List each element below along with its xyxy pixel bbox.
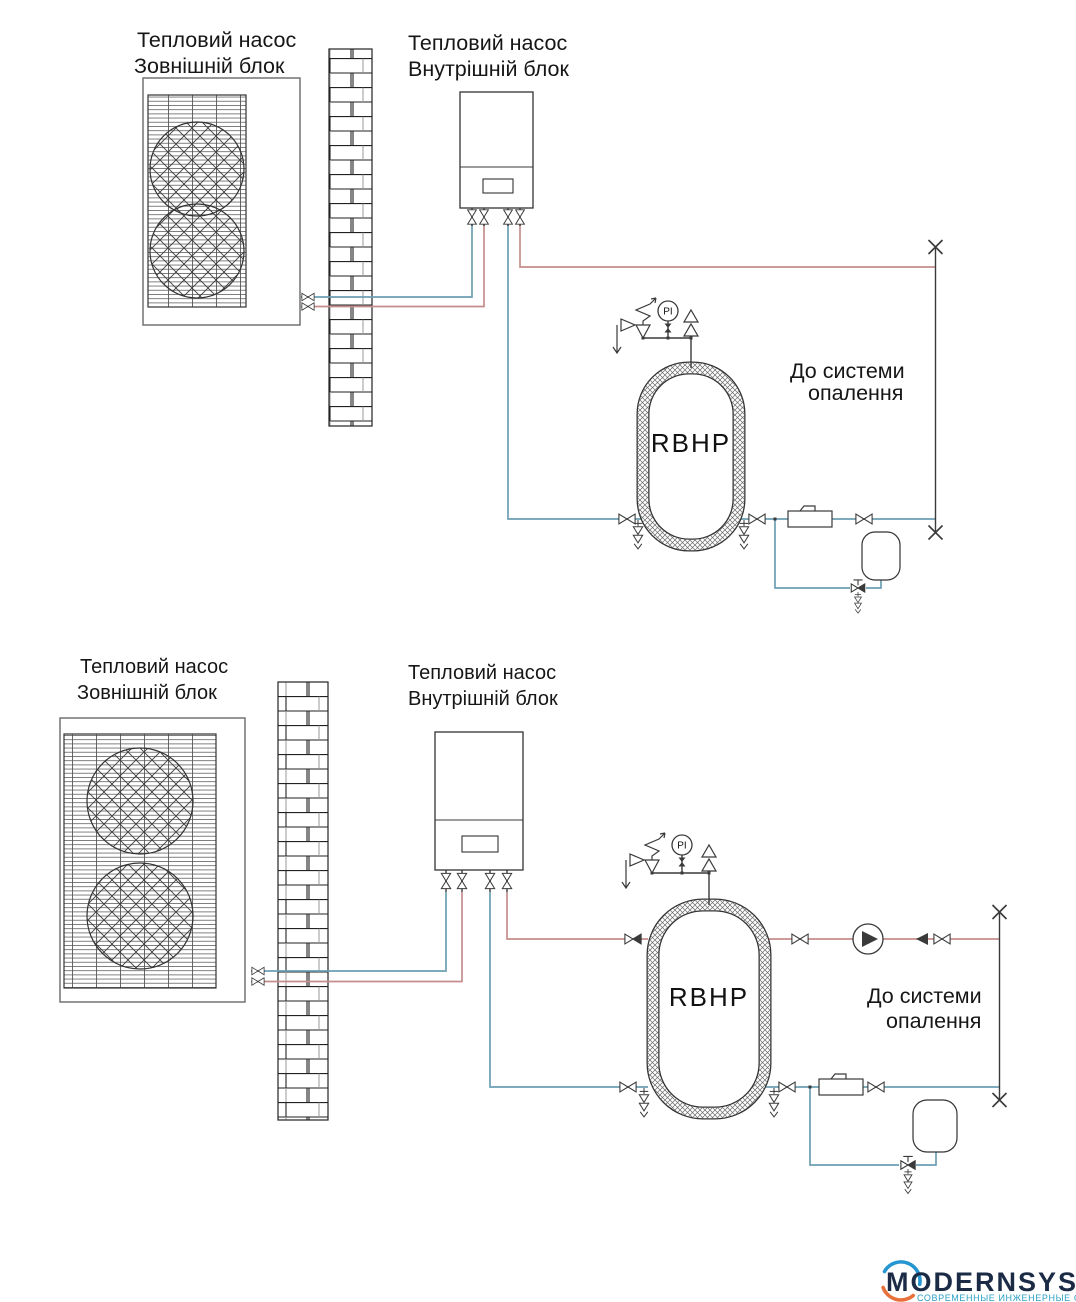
drain-valve-icon	[739, 520, 748, 549]
tank-valve-icon	[749, 514, 765, 524]
tank-inlet-valve-icon	[625, 934, 641, 944]
outdoor-unit	[143, 78, 300, 325]
strainer-filter-icon	[788, 506, 832, 527]
system-label-line1: До системи	[790, 359, 905, 383]
service-valve-icon	[504, 210, 513, 224]
logo: MODERNSYS СОВРЕМЕННЫЕ ИНЖЕНЕРНЫЕ СИСТЕМЫ	[883, 1262, 1076, 1302]
pressure-gauge-label: PI	[677, 841, 686, 852]
safety-group: PI	[613, 298, 698, 368]
indoor-unit	[435, 732, 523, 892]
line-valve-icon	[856, 514, 872, 524]
tank-label: RBHP	[651, 428, 731, 458]
refrigerant-valve-icon	[302, 303, 314, 310]
safety-valve-icon	[622, 833, 665, 888]
service-valve-icon	[485, 873, 494, 888]
line-valve-icon	[792, 934, 808, 944]
refrigerant-valve-icon	[302, 293, 314, 300]
indoor-unit-label-line1: Тепловий насос	[408, 31, 567, 55]
tank-valve-icon	[620, 1082, 636, 1092]
drain-valve-icon	[904, 1169, 912, 1193]
system-label-line2: опалення	[808, 381, 903, 405]
diagram-bottom: Тепловий насос Зовнішній блок Тепловий н…	[60, 656, 1007, 1193]
expansion-tank	[774, 518, 901, 614]
fill-valve-icon	[851, 580, 865, 592]
logo-tagline: СОВРЕМЕННЫЕ ИНЖЕНЕРНЫЕ СИСТЕМЫ	[917, 1293, 1076, 1302]
outdoor-unit	[60, 718, 245, 1002]
indoor-unit	[460, 92, 533, 226]
heating-riser	[929, 240, 943, 540]
display-panel	[483, 179, 513, 193]
drain-valve-icon	[639, 1088, 648, 1117]
display-panel	[462, 836, 498, 852]
refrigerant-valve-icon	[252, 967, 264, 974]
fan-icon	[87, 863, 193, 969]
service-valve-icon	[502, 873, 511, 888]
safety-group: PI	[622, 833, 716, 905]
tank-valve-icon	[619, 514, 635, 524]
diagram-top: Тепловий насос Зовнішній блок Тепловий н…	[134, 28, 943, 613]
air-vent-icon	[684, 310, 698, 336]
safety-valve-icon	[613, 298, 656, 353]
gauge-valve-icon	[665, 324, 672, 333]
service-valve-icon	[457, 873, 466, 888]
outdoor-unit-label-line2: Зовнішній блок	[77, 682, 217, 704]
fan-icon	[150, 204, 244, 298]
outdoor-unit-label-line2: Зовнішній блок	[134, 54, 285, 78]
tank-label: RBHP	[669, 982, 749, 1012]
outdoor-unit-label-line1: Тепловий насос	[80, 656, 228, 678]
schematic-canvas: Тепловий насос Зовнішній блок Тепловий н…	[0, 0, 1076, 1302]
circulation-pump-icon	[853, 924, 883, 954]
pressure-gauge-label: PI	[663, 307, 672, 318]
service-valve-icon	[516, 210, 525, 224]
fan-icon	[150, 122, 244, 216]
air-vent-icon	[702, 845, 716, 871]
expansion-tank	[809, 1086, 958, 1194]
refrigerant-valve-icon	[252, 978, 264, 985]
wall	[329, 49, 372, 426]
schematic-page: Тепловий насос Зовнішній блок Тепловий н…	[0, 0, 1076, 1302]
system-label-line1: До системи	[867, 984, 982, 1008]
indoor-unit-label-line1: Тепловий насос	[408, 662, 556, 684]
fill-valve-icon	[901, 1156, 915, 1169]
strainer-filter-icon	[819, 1074, 863, 1095]
tank-valve-icon	[779, 1082, 795, 1092]
outdoor-unit-label-line1: Тепловий насос	[137, 28, 296, 52]
buffer-tank: RBHP	[653, 905, 765, 1113]
indoor-unit-label-line2: Внутрішній блок	[408, 57, 570, 81]
expansion-vessel-icon	[862, 532, 900, 580]
line-valve-icon	[868, 1082, 884, 1092]
indoor-unit-label-line2: Внутрішній блок	[408, 688, 558, 710]
wall	[278, 682, 328, 1120]
service-valve-icon	[468, 210, 477, 224]
gauge-valve-icon	[679, 858, 686, 867]
system-label-line2: опалення	[886, 1009, 981, 1033]
drain-valve-icon	[855, 592, 862, 613]
buffer-tank: RBHP	[643, 368, 739, 545]
expansion-vessel-icon	[913, 1100, 957, 1152]
service-valve-icon	[480, 210, 489, 224]
drain-valve-icon	[769, 1088, 778, 1117]
service-valve-icon	[441, 873, 450, 888]
fan-icon	[87, 748, 193, 854]
heating-riser	[993, 905, 1007, 1107]
